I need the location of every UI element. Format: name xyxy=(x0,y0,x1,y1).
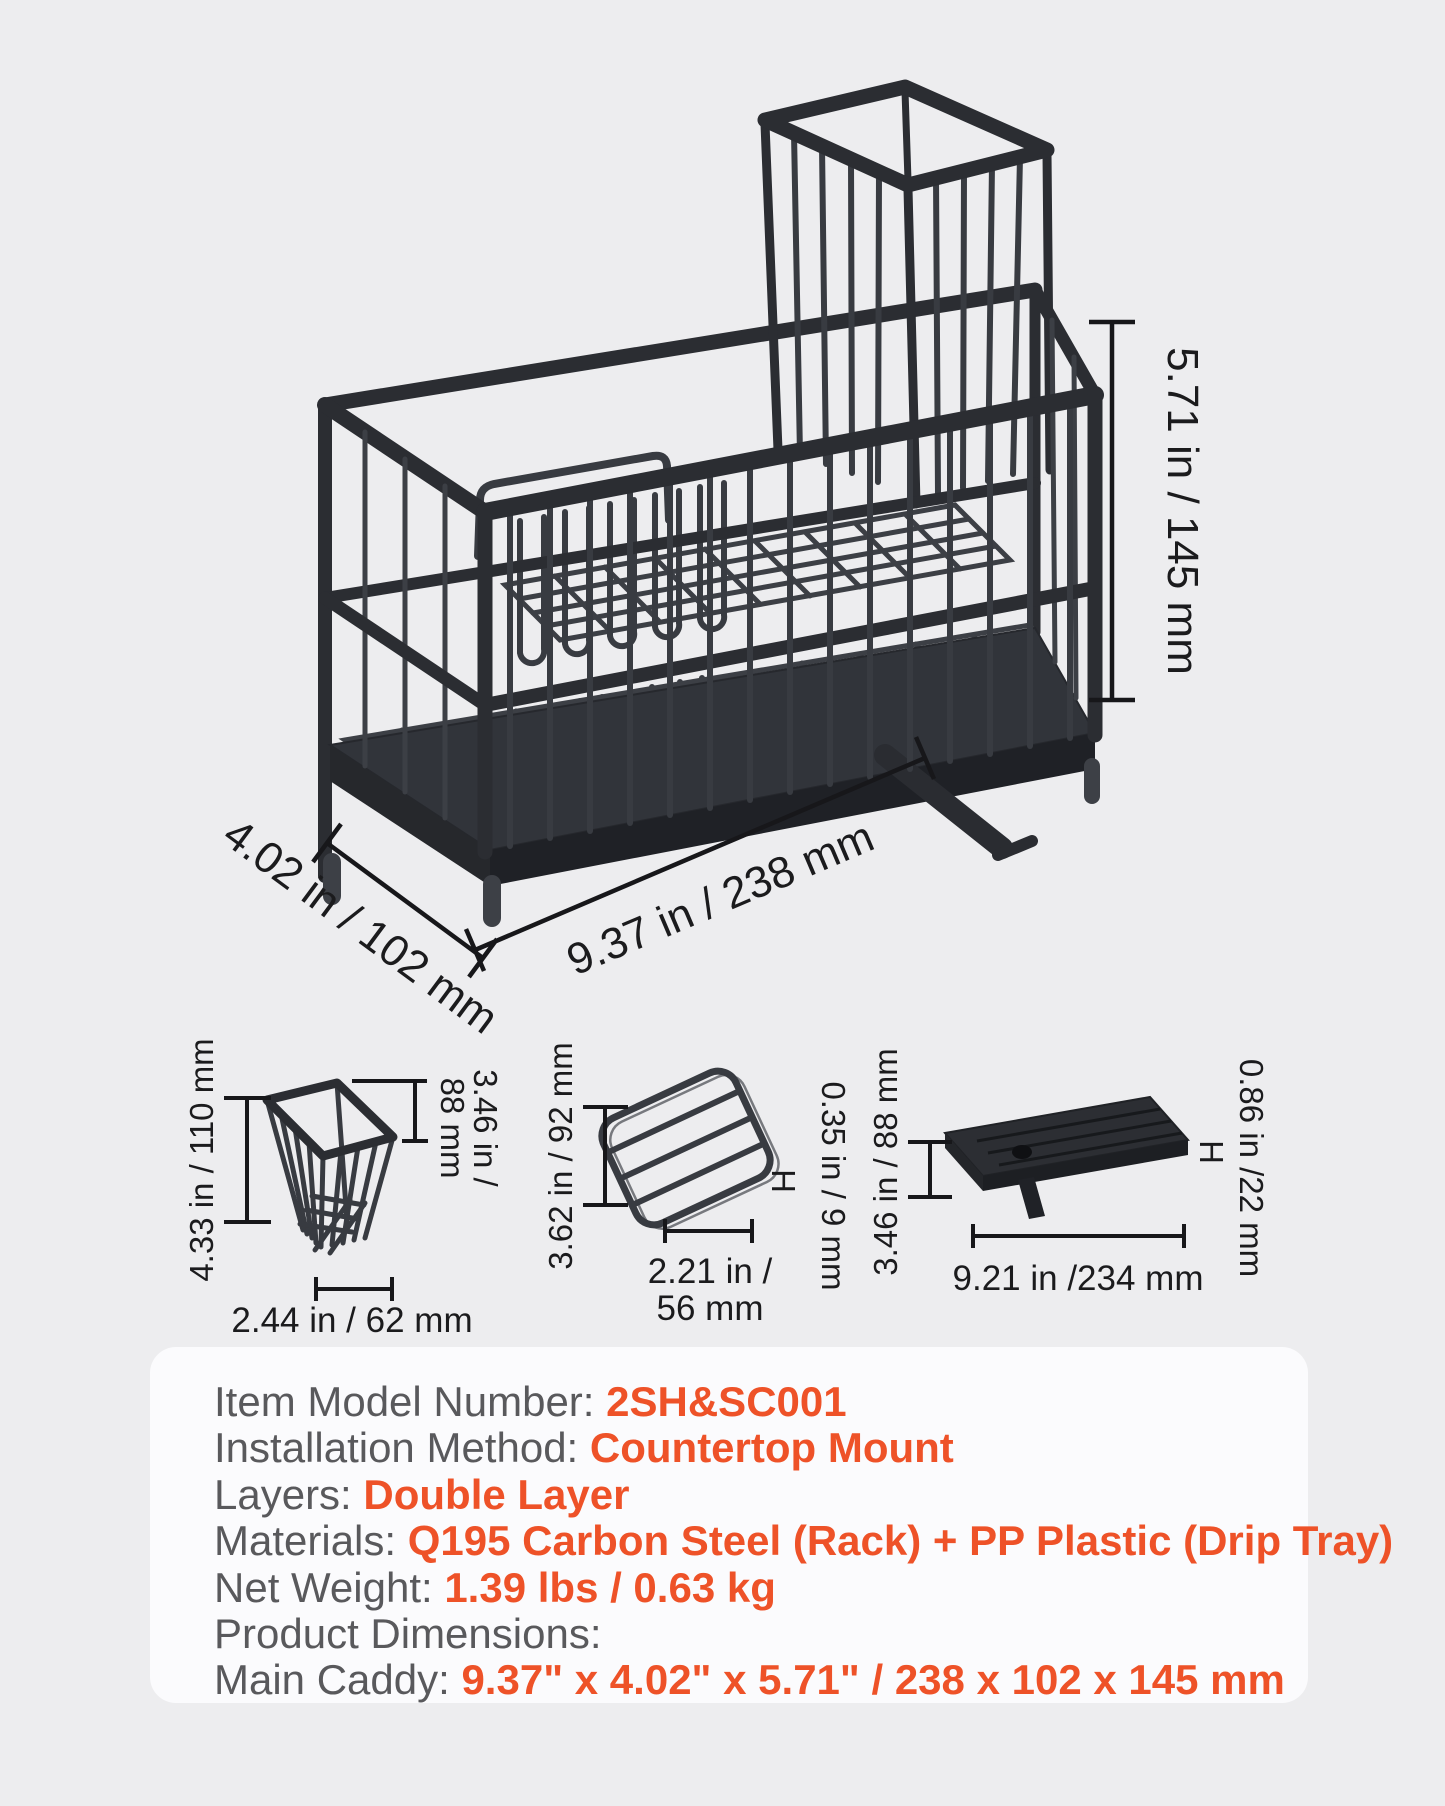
basket-height-label: 4.33 in / 110 mm xyxy=(183,1038,220,1281)
drip-tray-illustration xyxy=(945,1097,1188,1219)
spec-label: Layers: xyxy=(214,1471,363,1518)
spec-rows: Item Model Number: 2SH&SC001 Installatio… xyxy=(150,1347,1308,1704)
spec-row-installation: Installation Method: Countertop Mount xyxy=(214,1425,1268,1471)
main-caddy-illustration xyxy=(325,87,1095,918)
spec-row-model: Item Model Number: 2SH&SC001 xyxy=(214,1379,1268,1425)
spec-row-materials: Materials: Q195 Carbon Steel (Rack) + PP… xyxy=(214,1518,1268,1564)
spec-row-layers: Layers: Double Layer xyxy=(214,1472,1268,1518)
spec-value: Double Layer xyxy=(363,1471,629,1518)
small-rack-illustration xyxy=(595,1062,785,1238)
spec-value: 2SH&SC001 xyxy=(606,1378,846,1425)
tray-length-dimension: 9.21 in /234 mm xyxy=(953,1224,1204,1298)
rack-width-line1: 2.21 in / xyxy=(648,1252,773,1291)
spec-label: Installation Method: xyxy=(214,1424,590,1471)
spec-row-weight: Net Weight: 1.39 lbs / 0.63 kg xyxy=(214,1565,1268,1611)
spec-row-main-caddy-size: Main Caddy: 9.37" x 4.02" x 5.71" / 238 … xyxy=(214,1657,1268,1703)
tray-height-label: 0.86 in /22 mm xyxy=(1233,1059,1270,1277)
spec-row-dimensions-header: Product Dimensions: xyxy=(214,1611,1268,1657)
tray-depth-label: 3.46 in / 88 mm xyxy=(867,1048,904,1275)
rack-width-line2: 56 mm xyxy=(657,1289,764,1328)
spec-value: Countertop Mount xyxy=(590,1424,954,1471)
spec-label: Item Model Number: xyxy=(214,1378,606,1425)
figure-canvas: 5.71 in / 145 mm 9.37 in / 238 mm 4.02 i… xyxy=(0,0,1445,1340)
spec-label: Net Weight: xyxy=(214,1564,444,1611)
spec-panel: Item Model Number: 2SH&SC001 Installatio… xyxy=(150,1347,1308,1703)
basket-inner-height-dimension: 3.46 in / 88 mm xyxy=(352,1069,504,1187)
rack-thickness-label: 0.35 in / 9 mm xyxy=(815,1081,852,1290)
product-dimension-infographic: 5.71 in / 145 mm 9.37 in / 238 mm 4.02 i… xyxy=(0,0,1445,1806)
basket-width-label: 2.44 in / 62 mm xyxy=(231,1301,472,1340)
spec-label: Materials: xyxy=(214,1517,408,1564)
rack-width-dimension: 2.21 in / 56 mm xyxy=(648,1219,773,1328)
spec-value: 1.39 lbs / 0.63 kg xyxy=(444,1564,776,1611)
tray-height-marker: H xyxy=(1193,1140,1230,1164)
rack-thickness-dimension: H 0.35 in / 9 mm xyxy=(765,1081,852,1290)
tray-depth-dimension: 3.46 in / 88 mm xyxy=(867,1048,952,1275)
utensil-basket-illustration xyxy=(267,1083,393,1253)
spec-value: 9.37" x 4.02" x 5.71" / 238 x 102 x 145 … xyxy=(461,1656,1284,1703)
spec-label: Main Caddy: xyxy=(214,1656,461,1703)
rack-thickness-marker: H xyxy=(765,1169,802,1193)
tray-length-label: 9.21 in /234 mm xyxy=(953,1259,1204,1298)
main-height-dimension: 5.71 in / 145 mm xyxy=(1089,322,1207,700)
rack-length-label: 3.62 in / 92 mm xyxy=(542,1042,579,1269)
basket-height-dimension: 4.33 in / 110 mm xyxy=(183,1038,271,1281)
spec-label: Product Dimensions: xyxy=(214,1610,602,1657)
basket-inner-height-line1: 3.46 in / xyxy=(467,1069,504,1187)
tray-height-dimension: H 0.86 in /22 mm xyxy=(1193,1059,1270,1277)
basket-width-dimension: 2.44 in / 62 mm xyxy=(231,1277,472,1340)
main-height-label: 5.71 in / 145 mm xyxy=(1158,347,1207,675)
basket-inner-height-line2: 88 mm xyxy=(434,1078,471,1179)
spec-value: Q195 Carbon Steel (Rack) + PP Plastic (D… xyxy=(408,1517,1393,1564)
